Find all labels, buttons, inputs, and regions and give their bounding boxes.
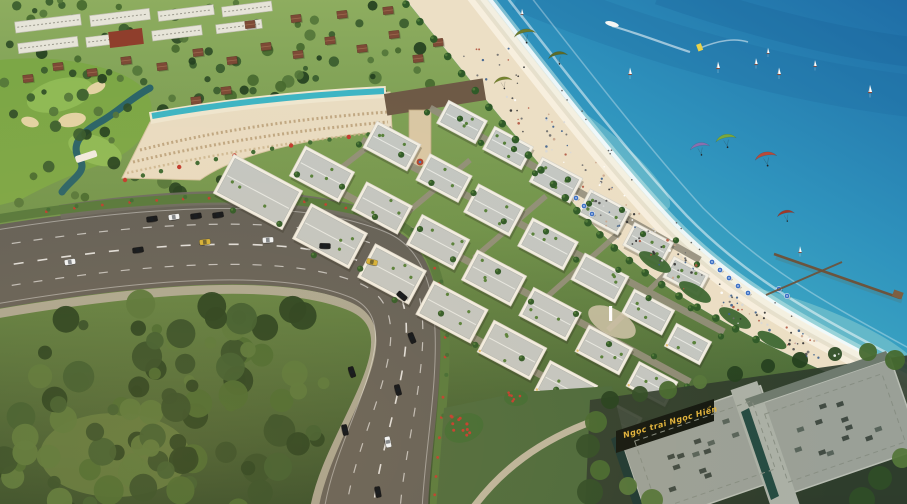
aerial-render-image: Ngọc trai Ngọc Hiển xyxy=(0,0,907,504)
scene-svg: Ngọc trai Ngọc Hiển xyxy=(0,0,907,504)
car xyxy=(319,243,331,250)
